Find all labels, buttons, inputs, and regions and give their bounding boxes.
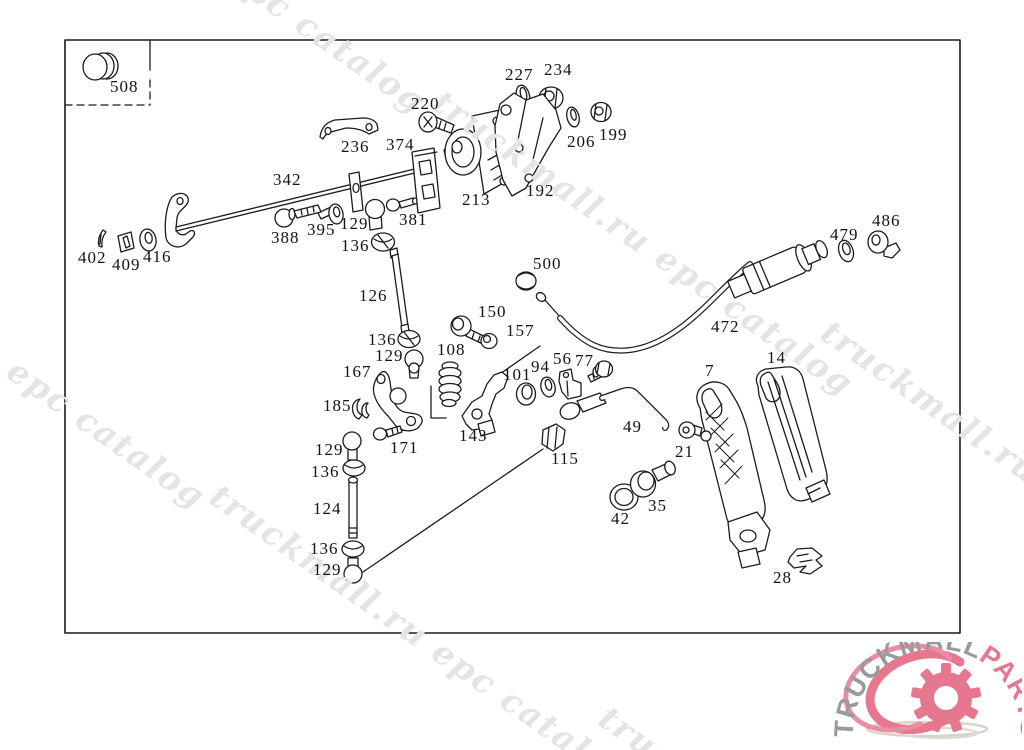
catalog-page: truckmall.ru epc catalogtruckmall.ru epc… <box>0 0 1024 750</box>
part-label-7: 7 <box>705 362 715 379</box>
part-label-42: 42 <box>611 510 630 527</box>
part-label-402: 402 <box>78 249 107 266</box>
part-label-234: 234 <box>544 61 573 78</box>
part-label-35: 35 <box>648 497 667 514</box>
part-label-56: 56 <box>553 350 572 367</box>
part-label-124: 124 <box>313 500 342 517</box>
part-label-342: 342 <box>273 171 302 188</box>
part-label-374: 374 <box>386 136 415 153</box>
part-label-416: 416 <box>143 248 172 265</box>
part-label-136c: 136 <box>311 463 340 480</box>
part-label-94: 94 <box>531 358 550 375</box>
part-label-136a: 136 <box>341 237 370 254</box>
part-label-129d: 129 <box>313 561 342 578</box>
part-label-21: 21 <box>675 443 694 460</box>
part-label-381: 381 <box>399 211 428 228</box>
part-label-101: 101 <box>503 366 532 383</box>
part-label-395: 395 <box>307 221 336 238</box>
part-label-28: 28 <box>773 569 792 586</box>
part-label-129b: 129 <box>375 347 404 364</box>
brand-logo: TRUCKMALLPARTS <box>822 642 1022 750</box>
part-label-157: 157 <box>506 322 535 339</box>
part-label-388: 388 <box>271 229 300 246</box>
part-label-236: 236 <box>341 138 370 155</box>
part-label-150: 150 <box>478 303 507 320</box>
part-label-206: 206 <box>567 133 596 150</box>
part-label-167: 167 <box>343 363 372 380</box>
part-label-409: 409 <box>112 256 141 273</box>
part-label-129c: 129 <box>315 441 344 458</box>
part-label-77: 77 <box>575 352 594 369</box>
part-label-486: 486 <box>872 212 901 229</box>
part-label-49: 49 <box>623 418 642 435</box>
part-label-192: 192 <box>526 182 555 199</box>
part-label-14: 14 <box>767 349 786 366</box>
part-label-108: 108 <box>437 341 466 358</box>
part-label-500: 500 <box>533 255 562 272</box>
part-label-199: 199 <box>599 126 628 143</box>
part-label-129a: 129 <box>340 215 369 232</box>
part-label-143: 143 <box>459 427 488 444</box>
part-label-472: 472 <box>711 318 740 335</box>
part-label-479: 479 <box>830 226 859 243</box>
part-label-227: 227 <box>505 66 534 83</box>
part-label-171: 171 <box>390 439 419 456</box>
part-label-115: 115 <box>551 450 579 467</box>
part-label-136d: 136 <box>310 540 339 557</box>
part-label-220: 220 <box>411 95 440 112</box>
part-label-126: 126 <box>359 287 388 304</box>
part-label-213: 213 <box>462 191 491 208</box>
part-labels-layer: 5082272342202363742061992131923423883951… <box>0 0 1024 750</box>
part-label-508: 508 <box>110 78 139 95</box>
part-label-185: 185 <box>323 397 352 414</box>
logo-text-secondary: PARTS <box>975 642 1022 739</box>
